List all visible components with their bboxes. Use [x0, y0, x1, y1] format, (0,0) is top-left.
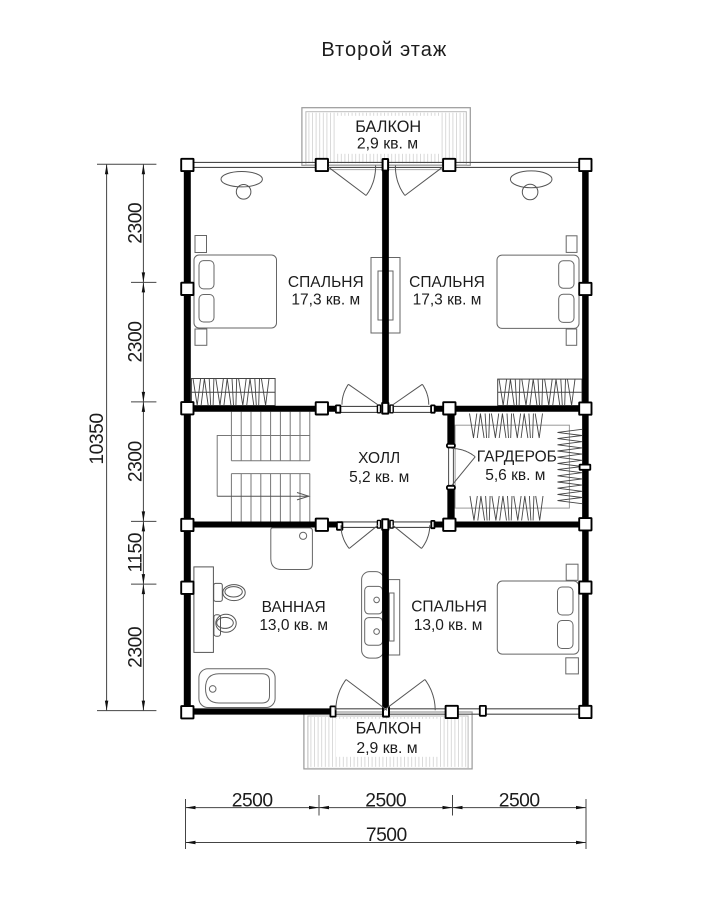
- svg-text:2500: 2500: [499, 790, 540, 811]
- svg-text:7500: 7500: [366, 825, 407, 846]
- svg-text:ГАРДЕРОБ: ГАРДЕРОБ: [477, 448, 557, 465]
- svg-text:СПАЛЬНЯ: СПАЛЬНЯ: [409, 274, 485, 291]
- svg-text:5,6 кв. м: 5,6 кв. м: [485, 467, 545, 484]
- svg-text:БАЛКОН: БАЛКОН: [355, 118, 421, 136]
- svg-text:ВАННАЯ: ВАННАЯ: [262, 599, 326, 616]
- svg-text:17,3 кв. м: 17,3 кв. м: [413, 291, 482, 308]
- svg-text:Второй этаж: Второй этаж: [321, 39, 447, 61]
- svg-text:2300: 2300: [126, 322, 147, 363]
- svg-text:10350: 10350: [87, 413, 108, 464]
- svg-text:2,9 кв. м: 2,9 кв. м: [357, 136, 418, 153]
- svg-text:1150: 1150: [126, 533, 147, 572]
- svg-text:ХОЛЛ: ХОЛЛ: [358, 450, 400, 467]
- svg-text:2500: 2500: [232, 790, 273, 811]
- svg-text:13,0 кв. м: 13,0 кв. м: [259, 617, 328, 634]
- svg-text:17,3 кв. м: 17,3 кв. м: [291, 291, 360, 308]
- svg-text:2300: 2300: [126, 441, 147, 482]
- svg-text:СПАЛЬНЯ: СПАЛЬНЯ: [411, 598, 487, 615]
- svg-text:БАЛКОН: БАЛКОН: [356, 720, 422, 738]
- svg-text:13,0 кв. м: 13,0 кв. м: [414, 617, 483, 634]
- svg-text:2300: 2300: [126, 627, 147, 668]
- svg-text:2,9 кв. м: 2,9 кв. м: [356, 740, 417, 757]
- svg-text:5,2 кв. м: 5,2 кв. м: [349, 469, 409, 486]
- svg-text:2300: 2300: [126, 203, 147, 244]
- svg-text:2500: 2500: [365, 790, 406, 811]
- svg-text:СПАЛЬНЯ: СПАЛЬНЯ: [288, 274, 364, 291]
